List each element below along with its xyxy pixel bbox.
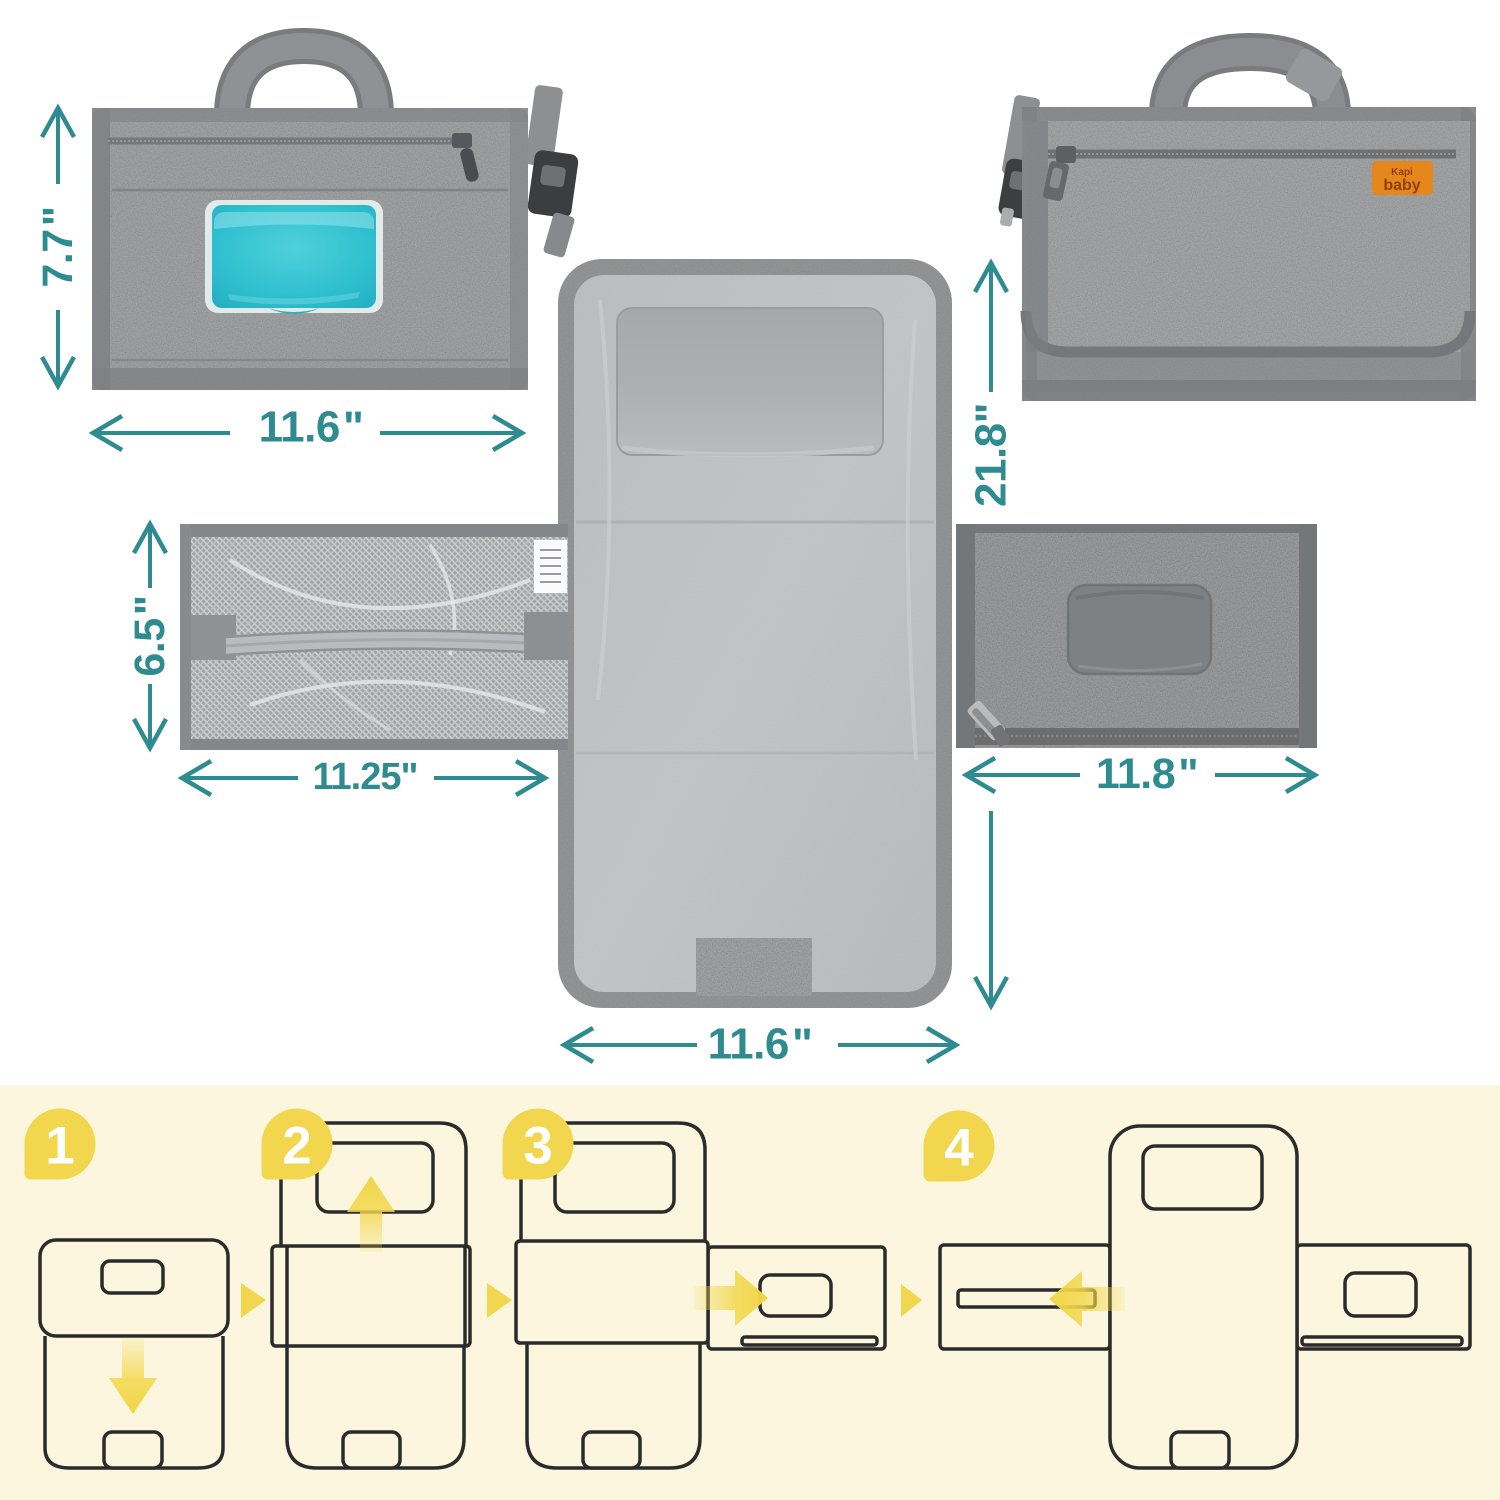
svg-text:baby: baby — [1383, 177, 1420, 194]
svg-text:11.25": 11.25" — [312, 756, 417, 798]
svg-text:11.6 ": 11.6 " — [708, 1020, 813, 1069]
svg-text:1: 1 — [45, 1117, 74, 1176]
svg-text:11.6 ": 11.6 " — [259, 403, 364, 452]
svg-text:6.5 ": 6.5 " — [126, 595, 174, 676]
svg-text:3: 3 — [523, 1117, 552, 1176]
svg-text:7.7 ": 7.7 " — [34, 206, 82, 287]
svg-text:11.8 ": 11.8 " — [1096, 750, 1198, 798]
svg-text:4: 4 — [944, 1119, 974, 1178]
svg-text:2: 2 — [282, 1117, 311, 1176]
svg-text:21.8": 21.8" — [967, 403, 1016, 507]
